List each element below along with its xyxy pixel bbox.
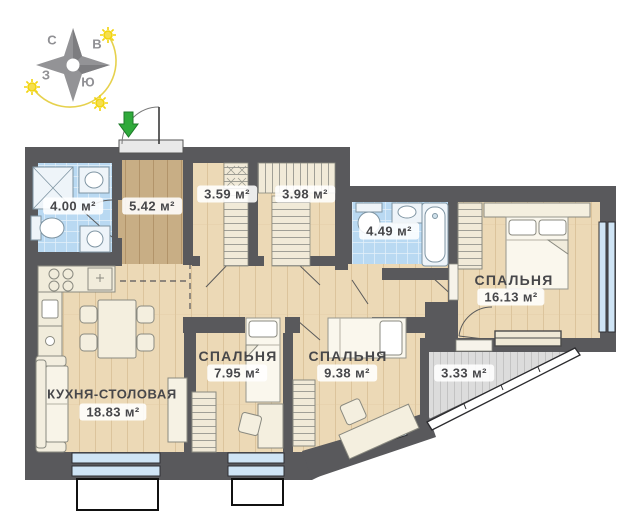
bedroom-center-name-label: СПАЛЬНЯ <box>309 348 388 364</box>
hallway-floor <box>118 160 183 280</box>
bench-icon <box>495 331 561 346</box>
compass-north-label: С <box>47 33 56 48</box>
floor-plan: С В З Ю 4.00 м² 5.42 м² 3.59 м² 3.98 м² … <box>0 0 639 522</box>
bedroom-left-area-label: 7.95 м² <box>207 365 267 382</box>
compass-west-label: З <box>42 68 50 83</box>
compass-rose <box>24 27 116 111</box>
entrance-door <box>119 107 183 153</box>
bedroom-main-door <box>449 264 458 300</box>
bedroom-center-area-label: 9.38 м² <box>317 365 377 382</box>
compass-south-label: Ю <box>81 75 94 90</box>
bathroom-small-area-label: 4.00 м² <box>43 198 103 215</box>
wardrobe-icon <box>293 380 315 446</box>
kitchen-area-label: 18.83 м² <box>79 404 146 421</box>
storage2-area-label: 3.98 м² <box>275 186 335 203</box>
wardrobe-icon <box>458 203 482 269</box>
kitchen-name-label: КУХНЯ-СТОЛОВАЯ <box>47 387 177 402</box>
bedroom-main-area-label: 16.13 м² <box>477 289 544 306</box>
dining-table-icon <box>98 300 136 358</box>
hallway-area-label: 5.42 м² <box>122 198 182 215</box>
compass-east-label: В <box>92 37 101 52</box>
sofa-icon <box>36 356 68 452</box>
kettle-icon <box>46 337 55 346</box>
french-balcony-rails <box>77 479 283 510</box>
desk-icon <box>258 404 283 448</box>
bedroom-left-name-label: СПАЛЬНЯ <box>199 348 278 364</box>
chair-icon <box>238 412 262 436</box>
bathroom-main-area-label: 4.49 м² <box>359 223 419 240</box>
bedroom-main-name-label: СПАЛЬНЯ <box>475 272 554 288</box>
toilet-icon <box>356 203 382 212</box>
headboard-shelf <box>484 203 590 217</box>
floor-plan-drawing <box>0 0 639 522</box>
balcony-area-label: 3.33 м² <box>434 365 494 382</box>
wardrobe-icon <box>192 392 216 452</box>
storage1-area-label: 3.59 м² <box>197 186 257 203</box>
balcony-door <box>456 340 492 351</box>
